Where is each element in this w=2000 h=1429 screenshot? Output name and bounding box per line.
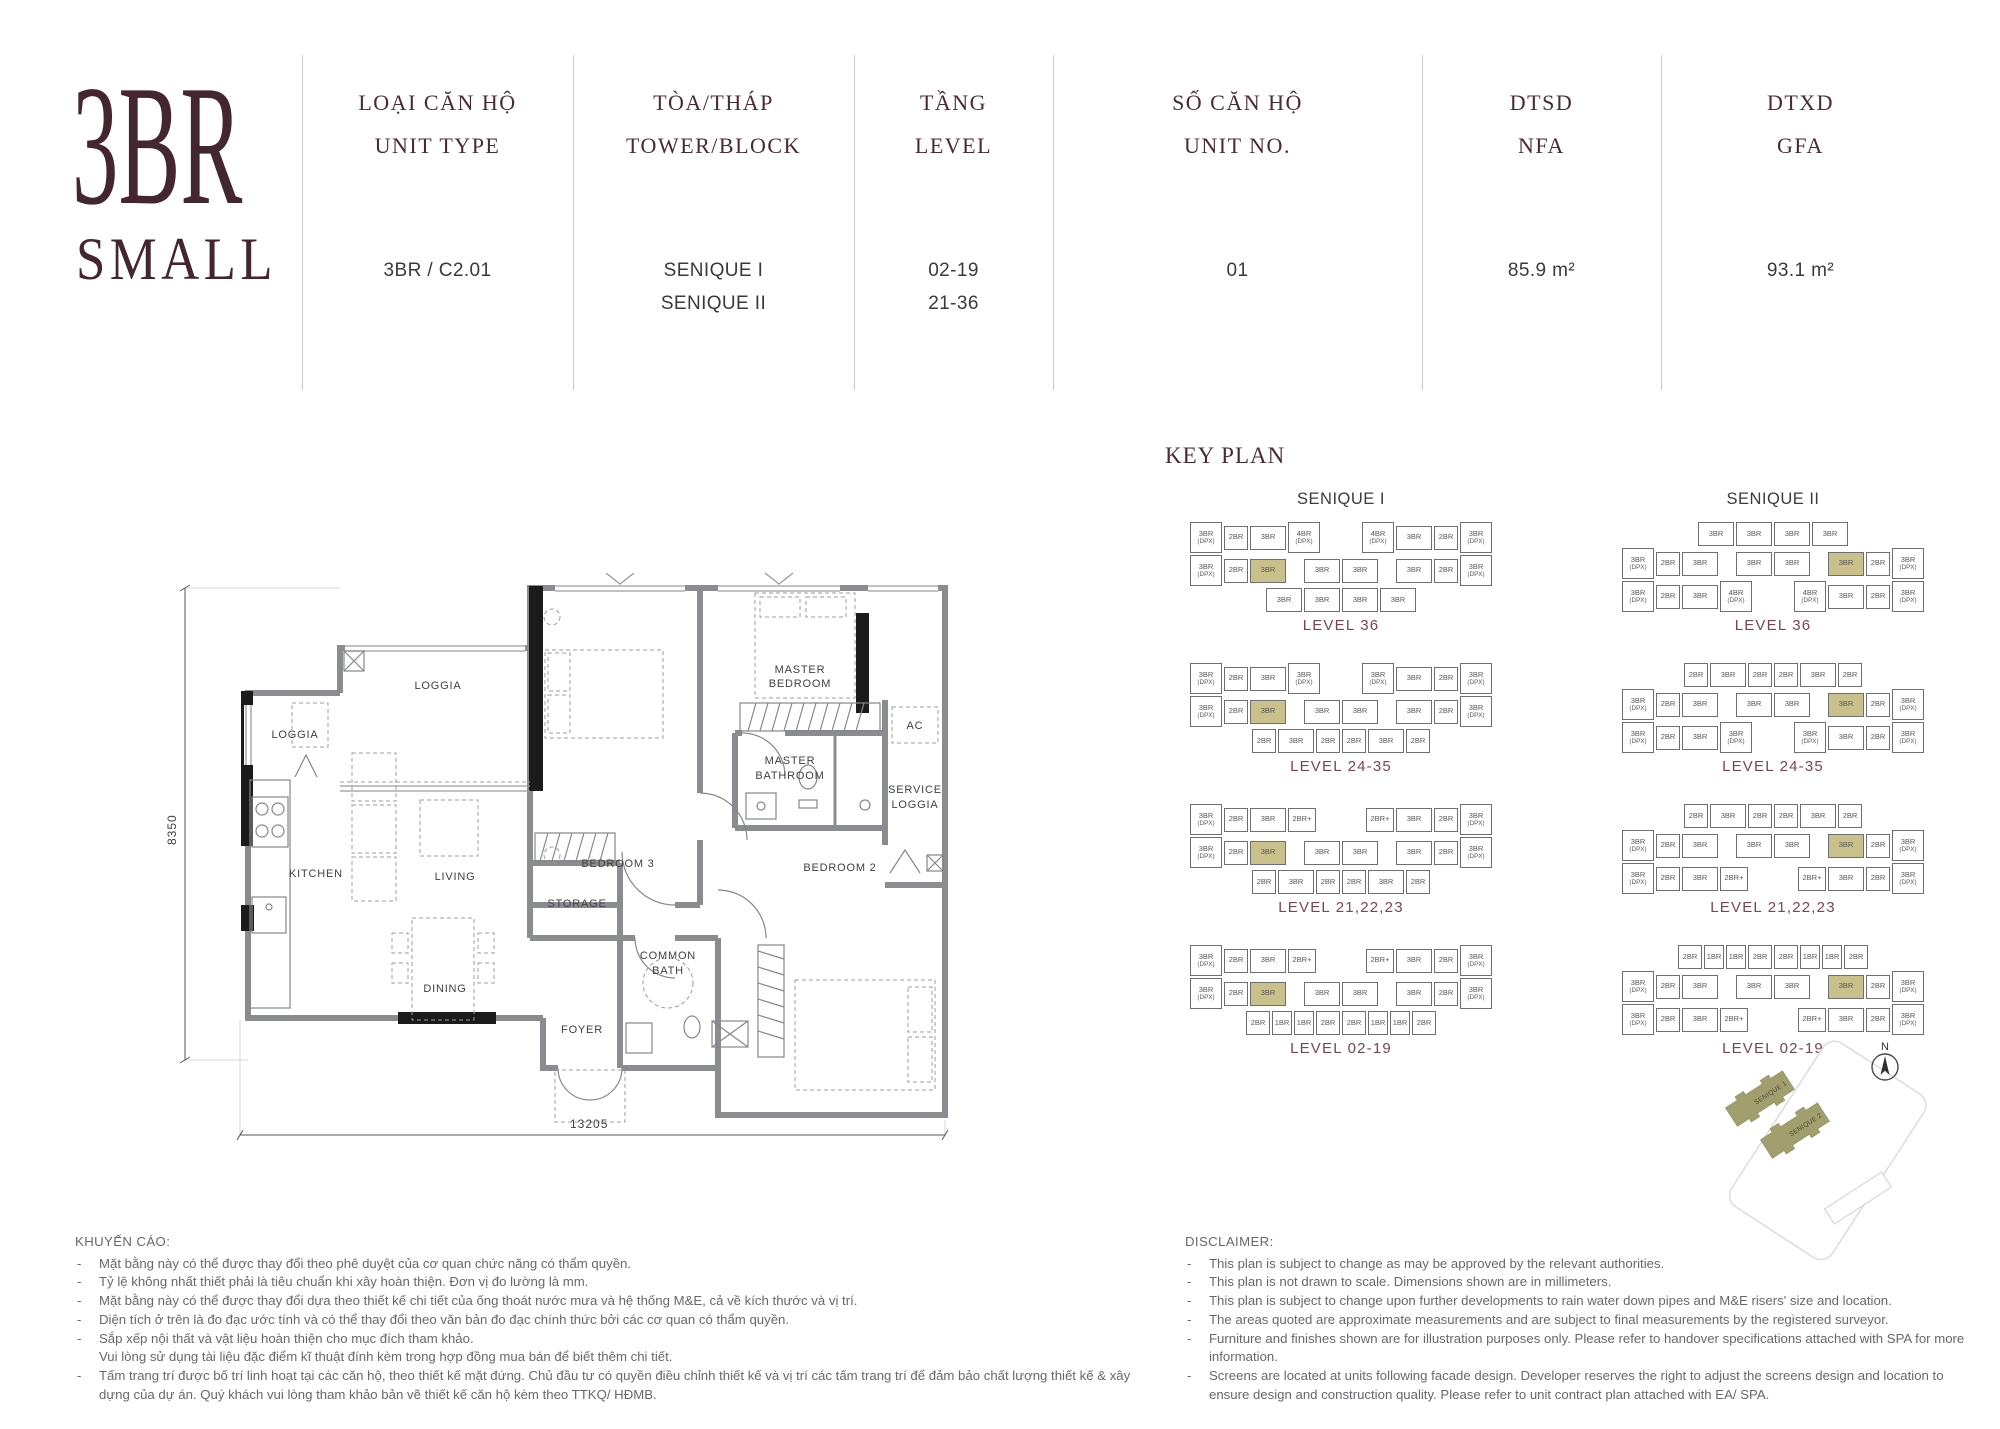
tower-title: SENIQUE I: [1190, 490, 1492, 509]
unit-cell: 3BR: [1682, 834, 1718, 858]
unit-cell: 2BR: [1316, 870, 1340, 894]
unit-cell: 3BR(DPX): [1622, 971, 1654, 1002]
unit-cell: 3BR: [1812, 522, 1848, 546]
unit-cell: 3BR: [1380, 588, 1416, 612]
unit-cell: 2BR: [1866, 975, 1890, 999]
unit-cell: 3BR(DPX): [1720, 722, 1752, 753]
unit-cell: 3BR: [1396, 982, 1432, 1006]
unit-cell: 3BR(DPX): [1190, 804, 1222, 835]
room-label-mbath-1: MASTER: [765, 755, 816, 767]
unit-cell: 3BR: [1396, 700, 1432, 724]
keyplan-level-diagram: 2BR3BR2BR2BR3BR2BR3BR(DPX)2BR3BR3BR3BR3B…: [1622, 804, 1924, 916]
unit-cell: 2BR+: [1798, 867, 1826, 891]
header-value: 85.9 m²: [1422, 260, 1661, 282]
unit-cell-highlighted: 3BR: [1828, 975, 1864, 999]
north-label: N: [1881, 1041, 1889, 1053]
note-item: -Tấm trang trí được bố trí linh hoạt tại…: [75, 1367, 1135, 1404]
unit-cell: 1BR: [1294, 1011, 1314, 1035]
unit-cell: 3BR: [1304, 700, 1340, 724]
note-item: -The areas quoted are approximate measur…: [1185, 1311, 1985, 1330]
unit-cell-highlighted: 3BR: [1828, 552, 1864, 576]
unit-cell-highlighted: 3BR: [1250, 841, 1286, 865]
unit-cell: 2BR: [1656, 552, 1680, 576]
notes-english: DISCLAIMER: -This plan is subject to cha…: [1185, 1233, 1985, 1405]
unit-cell: 3BR: [1710, 663, 1746, 687]
unit-cell: 3BR(DPX): [1892, 863, 1924, 894]
unit-cell: 3BR: [1736, 693, 1772, 717]
unit-cell: 3BR(DPX): [1892, 581, 1924, 612]
unit-cell: 2BR: [1656, 693, 1680, 717]
unit-cell: 2BR: [1774, 945, 1798, 969]
unit-cell: 2BR+: [1366, 808, 1394, 832]
unit-cell: 3BR: [1774, 693, 1810, 717]
unit-cell: 3BR: [1304, 841, 1340, 865]
unit-cell: 3BR: [1396, 559, 1432, 583]
unit-cell: 3BR(DPX): [1190, 978, 1222, 1009]
unit-cell: 3BR(DPX): [1190, 555, 1222, 586]
note-item: -Mặt bằng này có thể được thay đổi dựa t…: [75, 1292, 1135, 1311]
unit-cell: 2BR: [1656, 585, 1680, 609]
unit-cell: 2BR: [1748, 663, 1772, 687]
notes-vi-heading: KHUYẾN CÁO:: [75, 1233, 1135, 1252]
site-building-outline: [1825, 1172, 1892, 1224]
unit-cell: 3BR: [1342, 700, 1378, 724]
unit-cell: 3BR: [1396, 949, 1432, 973]
unit-cell: 2BR: [1224, 700, 1248, 724]
unit-cell: 3BR: [1368, 870, 1404, 894]
unit-cell: 4BR(DPX): [1720, 581, 1752, 612]
unit-cell: 2BR: [1224, 949, 1248, 973]
unit-cell: 3BR: [1250, 949, 1286, 973]
unit-cell: 3BR: [1800, 663, 1836, 687]
unit-size-label: SMALL: [76, 229, 277, 289]
room-label-master-1: MASTER: [775, 664, 826, 676]
unit-cell: 2BR: [1678, 945, 1702, 969]
unit-cell: 3BR: [1250, 526, 1286, 550]
unit-cell: 2BR: [1434, 949, 1458, 973]
unit-cell: 2BR: [1656, 726, 1680, 750]
unit-cell: 1BR: [1800, 945, 1820, 969]
note-item: -Diện tích ở trên là đo đạc ước tính và …: [75, 1311, 1135, 1330]
unit-cell: 2BR: [1866, 726, 1890, 750]
dim-height: 8350: [165, 814, 179, 845]
unit-cell: 2BR: [1844, 945, 1868, 969]
header-label-vi: TÒA/THÁP: [573, 90, 854, 116]
unit-cell: 2BR: [1748, 945, 1772, 969]
unit-cell: 2BR: [1434, 559, 1458, 583]
unit-cell: 3BR: [1682, 693, 1718, 717]
keyplan-level-label: LEVEL 24-35: [1190, 758, 1492, 775]
unit-cell: 2BR: [1838, 663, 1862, 687]
room-label-service-1: SERVICE: [888, 784, 942, 796]
unit-cell: 4BR(DPX): [1794, 581, 1826, 612]
header-label-vi: SỐ CĂN HỘ: [1053, 90, 1422, 116]
unit-cell: 2BR: [1434, 841, 1458, 865]
unit-cell: 3BR: [1828, 585, 1864, 609]
header-value-2: 21-36: [854, 293, 1053, 315]
unit-cell: 3BR(DPX): [1460, 945, 1492, 976]
keyplan-level-label: LEVEL 24-35: [1622, 758, 1924, 775]
keyplan-title: KEY PLAN: [1165, 443, 1285, 469]
unit-cell: 2BR: [1866, 693, 1890, 717]
unit-cell: 2BR+: [1288, 808, 1316, 832]
unit-cell: 3BR: [1396, 808, 1432, 832]
unit-cell: 2BR: [1434, 526, 1458, 550]
header-value-2: SENIQUE II: [573, 293, 854, 315]
unit-cell: 3BR: [1682, 585, 1718, 609]
keyplan-level-diagram: 3BR(DPX)2BR3BR2BR+2BR+3BR2BR3BR(DPX)3BR(…: [1190, 945, 1492, 1057]
note-item: -Furniture and finishes shown are for il…: [1185, 1330, 1985, 1367]
note-item: Vui lòng sử dụng tài liệu đặc điểm kĩ th…: [75, 1348, 1135, 1367]
unit-cell: 1BR: [1272, 1011, 1292, 1035]
unit-cell-highlighted: 3BR: [1828, 693, 1864, 717]
unit-cell: 3BR: [1736, 834, 1772, 858]
notes-vietnamese: KHUYẾN CÁO: -Mặt bằng này có thể được th…: [75, 1233, 1135, 1405]
unit-cell: 3BR: [1250, 667, 1286, 691]
room-label-ac: AC: [907, 720, 924, 732]
keyplan-level-label: LEVEL 02-19: [1190, 1040, 1492, 1057]
unit-cell: 2BR: [1434, 700, 1458, 724]
note-item: -Tỷ lệ không nhất thiết phải là tiêu chu…: [75, 1273, 1135, 1292]
unit-cell: 2BR: [1684, 804, 1708, 828]
unit-cell: 3BR: [1800, 804, 1836, 828]
unit-cell: 3BR: [1774, 522, 1810, 546]
unit-cell: 3BR(DPX): [1460, 978, 1492, 1009]
unit-cell: 2BR: [1434, 808, 1458, 832]
unit-cell: 3BR(DPX): [1190, 945, 1222, 976]
room-labels: LOGGIA LOGGIA KITCHEN LIVING DINING FOYE…: [272, 664, 942, 1036]
header-label-en: UNIT NO.: [1053, 133, 1422, 159]
unit-cell: 2BR: [1748, 804, 1772, 828]
site-boundary: [1724, 1036, 1931, 1265]
unit-cell: 3BR(DPX): [1892, 722, 1924, 753]
keyplan-level-diagram: 3BR(DPX)2BR3BR3BR(DPX)3BR(DPX)3BR2BR3BR(…: [1190, 663, 1492, 775]
unit-cell: 2BR: [1866, 834, 1890, 858]
notes-vi-list: -Mặt bằng này có thể được thay đổi theo …: [75, 1255, 1135, 1405]
unit-cell: 3BR: [1710, 804, 1746, 828]
unit-cell: 2BR: [1342, 870, 1366, 894]
unit-cell: 2BR: [1224, 667, 1248, 691]
unit-cell: 2BR: [1316, 729, 1340, 753]
keyplan-level-label: LEVEL 21,22,23: [1622, 899, 1924, 916]
unit-cell: 3BR(DPX): [1460, 555, 1492, 586]
unit-cell: 3BR(DPX): [1622, 689, 1654, 720]
room-label-bedroom2: BEDROOM 2: [803, 862, 876, 874]
room-label-foyer: FOYER: [561, 1024, 603, 1036]
unit-cell: 3BR: [1736, 975, 1772, 999]
unit-cell: 2BR: [1252, 870, 1276, 894]
unit-cell: 2BR: [1774, 663, 1798, 687]
header-value: 3BR / C2.01: [302, 260, 573, 282]
unit-cell: 2BR: [1224, 841, 1248, 865]
unit-cell: 3BR: [1266, 588, 1302, 612]
unit-cell: 1BR: [1726, 945, 1746, 969]
unit-cell: 2BR: [1224, 982, 1248, 1006]
unit-cell: 3BR(DPX): [1622, 581, 1654, 612]
unit-cell-highlighted: 3BR: [1828, 834, 1864, 858]
notes-en-list: -This plan is subject to change as may b…: [1185, 1255, 1985, 1405]
header-label-en: LEVEL: [854, 133, 1053, 159]
room-label-mbath-2: BATHROOM: [755, 770, 824, 782]
unit-cell: 3BR(DPX): [1892, 971, 1924, 1002]
unit-cell: 3BR(DPX): [1190, 663, 1222, 694]
keyplan-level-diagram: 3BR(DPX)2BR3BR2BR+2BR+3BR2BR3BR(DPX)3BR(…: [1190, 804, 1492, 916]
unit-cell: 3BR: [1828, 867, 1864, 891]
unit-cell: 3BR: [1368, 729, 1404, 753]
keyplan-level-label: LEVEL 21,22,23: [1190, 899, 1492, 916]
unit-cell: 2BR: [1252, 729, 1276, 753]
unit-cell: 2BR+: [1288, 949, 1316, 973]
unit-cell: 3BR(DPX): [1362, 663, 1394, 694]
tower-senique-1: SENIQUE I3BR(DPX)2BR3BR4BR(DPX)4BR(DPX)3…: [1190, 490, 1492, 1086]
unit-cell: 2BR: [1342, 1011, 1366, 1035]
room-label-loggia-top: LOGGIA: [415, 680, 462, 692]
unit-cell: 2BR: [1224, 808, 1248, 832]
unit-cell: 4BR(DPX): [1288, 522, 1320, 553]
note-item: -This plan is subject to change upon fur…: [1185, 1292, 1985, 1311]
unit-cell-highlighted: 3BR: [1250, 982, 1286, 1006]
unit-cell: 2BR: [1412, 1011, 1436, 1035]
unit-cell-highlighted: 3BR: [1250, 559, 1286, 583]
unit-cell: 3BR(DPX): [1622, 830, 1654, 861]
unit-cell: 4BR(DPX): [1362, 522, 1394, 553]
unit-cell: 3BR: [1304, 559, 1340, 583]
unit-cell: 3BR(DPX): [1622, 548, 1654, 579]
site-plan: SENIQUE 1 SENIQUE 2 N: [1700, 1025, 2000, 1265]
dim-width: 13205: [570, 1117, 608, 1131]
unit-cell: 2BR: [1866, 552, 1890, 576]
unit-cell: 3BR: [1682, 975, 1718, 999]
header-label-en: NFA: [1422, 133, 1661, 159]
room-label-cbath-2: BATH: [652, 965, 684, 977]
unit-cell: 2BR: [1656, 867, 1680, 891]
header-label-vi: DTXD: [1661, 90, 1940, 116]
unit-cell: 3BR(DPX): [1622, 1004, 1654, 1035]
note-item: -Sắp xếp nội thất và vật liệu hoàn thiện…: [75, 1330, 1135, 1349]
unit-cell: 3BR(DPX): [1892, 548, 1924, 579]
unit-cell: 3BR(DPX): [1892, 689, 1924, 720]
note-item: -This plan is not drawn to scale. Dimens…: [1185, 1273, 1985, 1292]
unit-cell: 3BR: [1774, 975, 1810, 999]
unit-cell: 3BR: [1774, 552, 1810, 576]
unit-cell: 1BR: [1390, 1011, 1410, 1035]
unit-cell: 3BR: [1396, 841, 1432, 865]
room-label-living: LIVING: [435, 871, 476, 883]
header-label-vi: TẦNG: [854, 90, 1053, 116]
unit-cell: 3BR: [1682, 867, 1718, 891]
unit-cell: 2BR: [1866, 867, 1890, 891]
keyplan-level-diagram: 3BR3BR3BR3BR3BR(DPX)2BR3BR3BR3BR3BR2BR3B…: [1622, 522, 1924, 634]
unit-cell: 3BR(DPX): [1190, 696, 1222, 727]
unit-type-logo: 3BR: [72, 60, 242, 232]
note-item: -Mặt bằng này có thể được thay đổi theo …: [75, 1255, 1135, 1274]
unit-cell: 2BR: [1224, 526, 1248, 550]
header-value: 02-19: [854, 260, 1053, 282]
unit-cell: 3BR(DPX): [1460, 696, 1492, 727]
unit-cell: 2BR: [1316, 1011, 1340, 1035]
room-label-service-2: LOGGIA: [892, 799, 939, 811]
tower-senique-2: SENIQUE II3BR3BR3BR3BR3BR(DPX)2BR3BR3BR3…: [1622, 490, 1924, 1086]
keyplan-level-label: LEVEL 36: [1190, 617, 1492, 634]
room-label-kitchen: KITCHEN: [289, 868, 343, 880]
header-value: 93.1 m²: [1661, 260, 1940, 282]
unit-cell: 3BR(DPX): [1460, 663, 1492, 694]
unit-cell: 2BR: [1838, 804, 1862, 828]
unit-cell: 2BR: [1656, 834, 1680, 858]
tower-title: SENIQUE II: [1622, 490, 1924, 509]
unit-cell: 3BR(DPX): [1190, 522, 1222, 553]
unit-cell: 3BR: [1342, 559, 1378, 583]
unit-cell: 2BR: [1774, 804, 1798, 828]
room-label-loggia-left: LOGGIA: [272, 729, 319, 741]
unit-cell: 2BR: [1684, 663, 1708, 687]
unit-cell: 2BR: [1224, 559, 1248, 583]
unit-cell: 3BR(DPX): [1892, 830, 1924, 861]
unit-cell: 1BR: [1368, 1011, 1388, 1035]
header-label-en: UNIT TYPE: [302, 133, 573, 159]
unit-cell: 3BR(DPX): [1460, 522, 1492, 553]
room-label-bedroom3: BEDROOM 3: [581, 858, 654, 870]
keyplan-level-diagram: 2BR3BR2BR2BR3BR2BR3BR(DPX)2BR3BR3BR3BR3B…: [1622, 663, 1924, 775]
unit-cell: 3BR: [1342, 982, 1378, 1006]
keyplan-level-diagram: 3BR(DPX)2BR3BR4BR(DPX)4BR(DPX)3BR2BR3BR(…: [1190, 522, 1492, 634]
unit-cell: 2BR+: [1720, 867, 1748, 891]
floor-plan: 8350 13205 LOGGIA LOGGIA KITCHEN LIVING …: [140, 555, 970, 1165]
unit-cell: 3BR: [1342, 841, 1378, 865]
unit-cell: 2BR: [1866, 585, 1890, 609]
columns: [241, 586, 869, 1024]
unit-cell: 3BR: [1396, 667, 1432, 691]
unit-cell: 3BR: [1682, 726, 1718, 750]
unit-cell: 3BR: [1342, 588, 1378, 612]
unit-cell: 2BR: [1656, 975, 1680, 999]
unit-cell: 2BR: [1406, 729, 1430, 753]
unit-cell: 2BR: [1246, 1011, 1270, 1035]
header-value: SENIQUE I: [573, 260, 854, 282]
header-label-en: TOWER/BLOCK: [573, 133, 854, 159]
unit-cell: 3BR: [1736, 522, 1772, 546]
unit-cell: 2BR: [1434, 982, 1458, 1006]
unit-cell: 1BR: [1704, 945, 1724, 969]
unit-cell: 2BR: [1342, 729, 1366, 753]
unit-cell: 3BR: [1278, 729, 1314, 753]
unit-cell: 3BR: [1736, 552, 1772, 576]
unit-cell: 3BR(DPX): [1622, 863, 1654, 894]
unit-cell: 3BR: [1698, 522, 1734, 546]
unit-cell: 2BR: [1406, 870, 1430, 894]
unit-cell: 1BR: [1822, 945, 1842, 969]
room-label-storage: STORAGE: [547, 898, 606, 910]
unit-cell: 3BR: [1774, 834, 1810, 858]
site-building-senique-1: SENIQUE 1: [1723, 1067, 1796, 1129]
header-label-vi: DTSD: [1422, 90, 1661, 116]
unit-cell: 2BR: [1434, 667, 1458, 691]
note-item: -Screens are located at units following …: [1185, 1367, 1985, 1404]
unit-cell: 3BR: [1250, 808, 1286, 832]
unit-cell-highlighted: 3BR: [1250, 700, 1286, 724]
keyplan-level-label: LEVEL 36: [1622, 617, 1924, 634]
unit-cell: 3BR: [1304, 588, 1340, 612]
header-value: 01: [1053, 260, 1422, 282]
unit-cell: 3BR: [1278, 870, 1314, 894]
unit-cell: 3BR(DPX): [1794, 722, 1826, 753]
note-item: -This plan is subject to change as may b…: [1185, 1255, 1985, 1274]
unit-cell: 3BR: [1682, 552, 1718, 576]
unit-cell: 3BR(DPX): [1460, 804, 1492, 835]
unit-cell: 3BR(DPX): [1190, 837, 1222, 868]
room-label-cbath-1: COMMON: [640, 950, 696, 962]
room-label-dining: DINING: [423, 983, 466, 995]
unit-cell: 3BR(DPX): [1622, 722, 1654, 753]
unit-cell: 3BR: [1828, 726, 1864, 750]
unit-cell: 2BR+: [1366, 949, 1394, 973]
unit-plan-sheet: 3BR SMALL LOẠI CĂN HỘUNIT TYPE3BR / C2.0…: [0, 0, 2000, 1429]
unit-cell: 2BR: [1656, 1008, 1680, 1032]
north-compass-icon: N: [1872, 1041, 1898, 1080]
room-label-master-2: BEDROOM: [769, 678, 831, 690]
header-label-en: GFA: [1661, 133, 1940, 159]
header-label-vi: LOẠI CĂN HỘ: [302, 90, 573, 116]
unit-cell: 3BR(DPX): [1288, 663, 1320, 694]
notes-en-heading: DISCLAIMER:: [1185, 1233, 1985, 1252]
unit-cell: 3BR: [1304, 982, 1340, 1006]
unit-cell: 3BR: [1396, 526, 1432, 550]
unit-cell: 3BR(DPX): [1460, 837, 1492, 868]
